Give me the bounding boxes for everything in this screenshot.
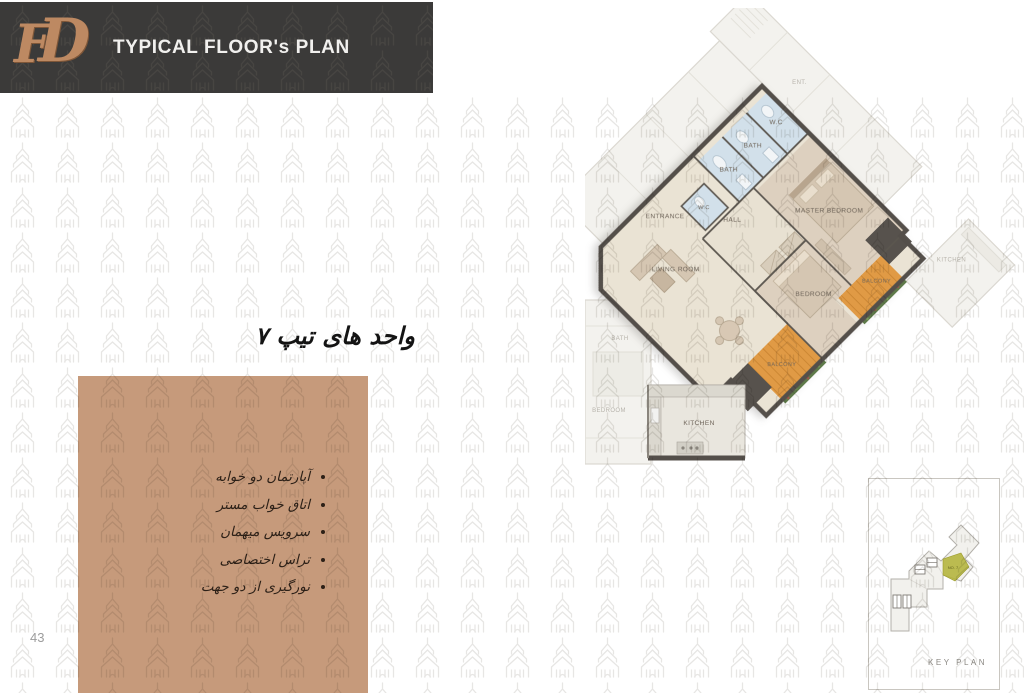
svg-text:BATH: BATH — [720, 167, 738, 174]
page-number: 43 — [30, 630, 44, 645]
svg-text:BEDROOM: BEDROOM — [592, 408, 626, 414]
svg-text:BALCONY: BALCONY — [862, 279, 891, 285]
adjacent-kitchen-faded: KITCHEN — [906, 219, 1014, 327]
svg-text:MASTER BEDROOM: MASTER BEDROOM — [795, 208, 863, 215]
svg-text:BATH: BATH — [744, 143, 762, 150]
key-plan-box: NO. 7 KEY PLAN — [868, 478, 1000, 690]
features-panel: آپارتمان دو خوابه اتاق خواب مستر سرویس م… — [78, 376, 368, 693]
features-list: آپارتمان دو خوابه اتاق خواب مستر سرویس م… — [78, 376, 368, 602]
highlighted-unit-label: NO. 7 — [948, 565, 959, 570]
slide-page: F D FD TYPICAL FLOOR's PLAN واحد های تیپ… — [0, 0, 1024, 693]
svg-text:KITCHEN: KITCHEN — [683, 420, 714, 427]
page-title: TYPICAL FLOOR's PLAN — [113, 2, 350, 93]
svg-text:W.C: W.C — [698, 205, 710, 211]
logo-monogram-icon: F D FD — [8, 2, 98, 93]
svg-text:W.C: W.C — [769, 119, 782, 126]
feature-item: آپارتمان دو خوابه — [102, 464, 310, 492]
key-plan-label: KEY PLAN — [928, 658, 987, 667]
svg-text:KITCHEN: KITCHEN — [937, 257, 966, 263]
key-plan-map: NO. 7 — [869, 479, 997, 687]
svg-text:ENT.: ENT. — [792, 80, 807, 86]
feature-item: نورگیری از دو جهت — [102, 574, 310, 602]
svg-text:ENTRANCE: ENTRANCE — [646, 213, 685, 220]
svg-text:BALCONY: BALCONY — [767, 362, 796, 368]
svg-text:BATH: BATH — [611, 336, 628, 342]
feature-item: تراس اختصاصی — [102, 547, 310, 575]
svg-text:HALL: HALL — [723, 217, 741, 224]
svg-text:LIVING ROOM: LIVING ROOM — [652, 266, 700, 273]
feature-item: سرویس میهمان — [102, 519, 310, 547]
header-bar: F D FD TYPICAL FLOOR's PLAN — [0, 2, 433, 93]
unit-type-heading: واحد های تیپ ۷ — [205, 322, 415, 350]
kitchen-wing: KITCHEN — [648, 385, 745, 458]
feature-item: اتاق خواب مستر — [102, 492, 310, 520]
svg-text:BEDROOM: BEDROOM — [795, 291, 831, 298]
floor-plan: BATH BEDROOM ENT. KI — [585, 8, 1015, 468]
